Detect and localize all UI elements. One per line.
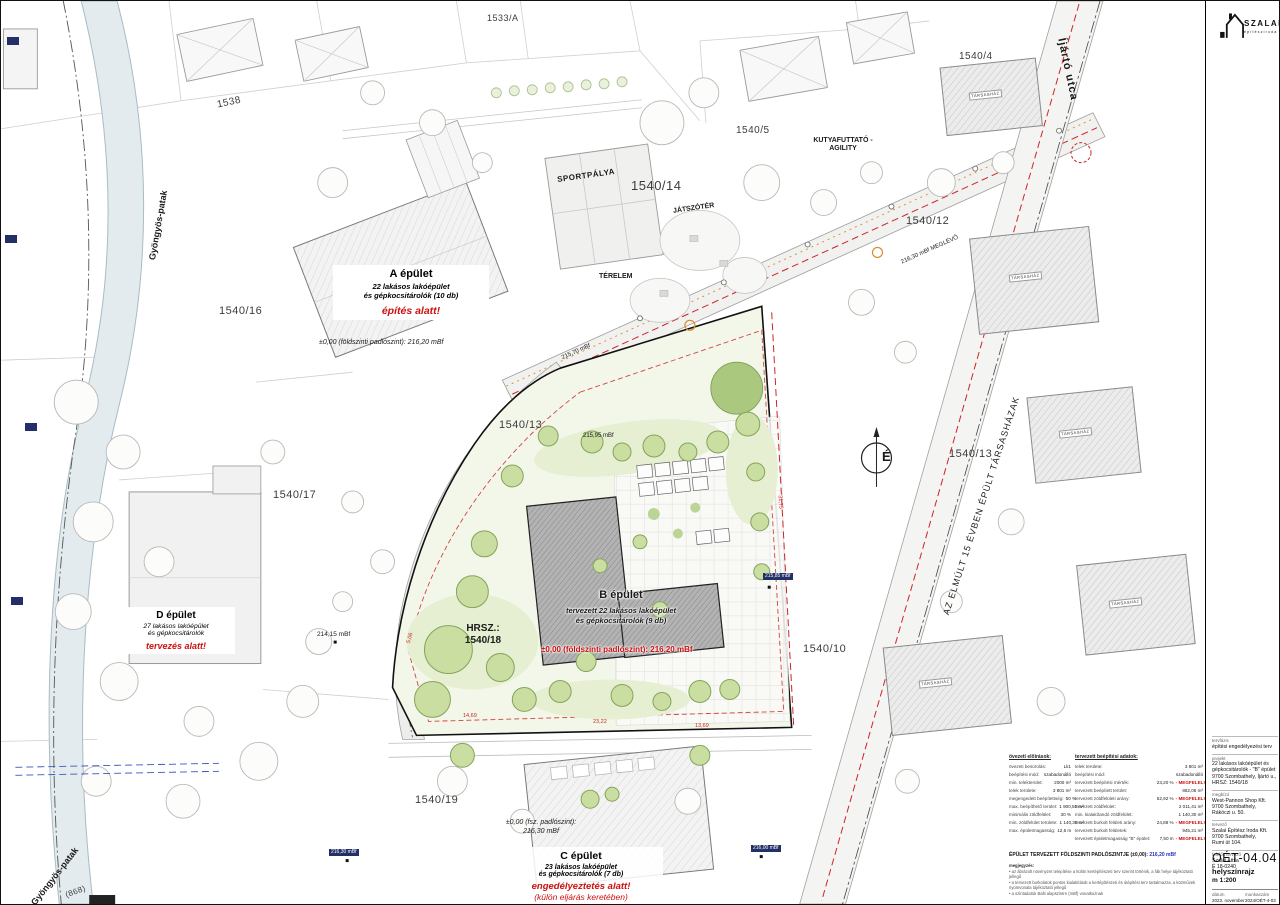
table-row: min. telekterület:2000 m² — [1009, 779, 1071, 787]
plot-label-1540-13-left: 1540/13 — [499, 419, 542, 432]
phase-section: tervfázis építési engedélyezési terv — [1212, 736, 1278, 750]
building-a-desc1: 22 lakásos lakóépület — [335, 282, 487, 291]
building-c-level2: 216,30 mBf — [485, 828, 597, 836]
plot-label-1540-16: 1540/16 — [219, 305, 262, 318]
logo-name: SZALAI — [1244, 19, 1280, 28]
level-tag-216-30: 216,30 mBf — [329, 849, 359, 856]
table-row: tervezett zöldfelület:2 011,41 m² — [1075, 803, 1205, 811]
table-row: tervezett burkolt felületi arány:24,88 %… — [1075, 819, 1205, 827]
level-tag-215-85: 215,85 mBf — [763, 573, 793, 580]
river-marker — [5, 235, 17, 243]
project-line: HRSZ: 1540/18 — [1212, 780, 1278, 786]
sport-field — [545, 144, 663, 269]
note-item: • az ábrázolt növényzet telepítése a kül… — [1009, 869, 1201, 880]
building-c-status: engedélyeztetés alatt! — [501, 881, 661, 892]
table-row: min. zöldfelület területe:1 140,30 m² — [1009, 819, 1071, 827]
table-row: minimális zöldfelület:30 % — [1009, 811, 1071, 819]
building-a-status: építés alatt! — [335, 305, 487, 317]
job-number-value: 2024/OÉT-4-03 — [1245, 898, 1278, 903]
date-value: 2023. november — [1212, 898, 1245, 903]
note-item: • a szintadatok Balti alapszintre (mBf) … — [1009, 891, 1201, 897]
project-line: gépkocsitárolók - "B" épület — [1212, 767, 1278, 773]
zoning-right-header: tervezett beépítési adatok: — [1075, 754, 1205, 760]
building-c-status-note: (külön eljárás keretében) — [501, 892, 661, 902]
building-a-title: A épület — [335, 268, 487, 280]
house-logo-icon — [1212, 7, 1246, 45]
level-label-214-15: 214,15 mBf — [317, 631, 350, 638]
building-d-desc2: és gépkocsitárolók — [119, 630, 233, 637]
building-b-desc1: tervezett 22 lakásos lakóépület — [506, 607, 736, 616]
level-tag-216-00: 216,00 mBf — [751, 845, 781, 852]
river-marker — [7, 37, 19, 45]
building-c-title: C épület — [501, 850, 661, 862]
date-job-row: dátum 2023. november munkaszám 2024/OÉT-… — [1212, 889, 1278, 903]
table-row: beépítési mód:szabadonálló — [1009, 771, 1071, 779]
dim-label-5: 31,75 — [776, 495, 783, 509]
job-number-caption: munkaszám — [1245, 891, 1278, 897]
table-row: telek területe:3 801 m² — [1009, 787, 1071, 795]
zoning-table-left: övezeti előírások: övezeti besorolás:Lk1… — [1009, 754, 1071, 835]
table-row: tervezett épületmagasság "B" épület:7,50… — [1075, 835, 1205, 843]
table-row: tervezett burkolt felületek:945,21 m² — [1075, 827, 1205, 835]
designer-section: tervező Szalai Építész Iroda Kft. 9700 S… — [1212, 820, 1278, 846]
notes-block: megjegyzés: • az ábrázolt növényzet tele… — [1009, 863, 1201, 897]
phase-caption: tervfázis — [1212, 736, 1278, 743]
site-plan-sheet: 1533/A 1538 1540/4 1540/5 1540/12 1540/1… — [0, 0, 1280, 905]
plot-label-1540-12: 1540/12 — [906, 215, 949, 228]
building-a-level: ±0,00 (földszinti padlószint): 216,20 mB… — [319, 339, 443, 347]
site-hrsz-line2: 1540/18 — [445, 635, 521, 647]
date-cell: dátum 2023. november — [1212, 889, 1245, 903]
plot-label-1540-5: 1540/5 — [736, 125, 770, 137]
floor-level-band-value: 216,20 mBf — [1149, 852, 1175, 858]
building-d-title: D épület — [119, 610, 233, 621]
date-caption: dátum — [1212, 891, 1245, 897]
plot-label-1540-14: 1540/14 — [631, 179, 682, 194]
client-section: megbízó West-Pannon Shop Kft. 9700 Szomb… — [1212, 790, 1278, 816]
table-row: tervezett zöldfelületi arány:52,92 %- ME… — [1075, 795, 1205, 803]
sheet-name: helyszínrajz — [1212, 867, 1255, 876]
dim-label-2: 14,69 — [463, 713, 477, 719]
building-b-level: ±0,00 (földszinti padlószint): 216,20 mB… — [541, 645, 693, 654]
table-row: min. kialakítandó zöldfelület:1 140,30 m… — [1075, 811, 1205, 819]
table-row: megengedett beépítettség:50 % — [1009, 795, 1071, 803]
area-label-dog-run: KUTYAFUTTATÓ - AGILITY — [811, 137, 875, 153]
building-d-status: tervezés alatt! — [119, 641, 233, 651]
title-block: SZALAI építésziroda tervfázis építési en… — [1205, 1, 1280, 905]
table-row: max. épületmagasság:12,5 m — [1009, 827, 1071, 835]
building-d-label: D épület 27 lakásos lakóépület és gépkoc… — [117, 607, 235, 654]
designer-line: Rumi út 104. — [1212, 840, 1278, 846]
project-line: 9700 Szombathely, Íjártó u., — [1212, 774, 1278, 780]
plot-label-1540-19: 1540/19 — [415, 794, 458, 807]
table-row: övezeti besorolás:Lk1 — [1009, 763, 1071, 771]
floor-level-band-label: ÉPÜLET TERVEZETT FÖLDSZINTI PADLÓSZINTJE… — [1009, 852, 1148, 858]
building-c-desc2: és gépkocsitárolók (7 db) — [501, 871, 661, 878]
table-row: beépítési mód:szabadonálló — [1075, 771, 1205, 779]
client-line: Rákóczi u. 50. — [1212, 810, 1278, 816]
plot-label-1540-17: 1540/17 — [273, 489, 316, 502]
designer-caption: tervező — [1212, 820, 1278, 827]
plot-label-1540-4: 1540/4 — [959, 51, 993, 63]
building-a-label: A épület 22 lakásos lakóépület és gépkoc… — [333, 265, 489, 320]
logo-subtitle: építésziroda — [1244, 30, 1277, 34]
building-b-desc2: és gépkocsitárolók (9 db) — [506, 617, 736, 626]
area-label-terelem: TÉRELEM — [599, 273, 632, 281]
sheet-code: OÉT-04.04 — [1212, 851, 1277, 865]
building-b-title: B épület — [531, 589, 711, 602]
river-marker — [11, 597, 23, 605]
tree-row-path — [491, 77, 627, 98]
plot-label-1540-13-right: 1540/13 — [949, 448, 992, 461]
building-a-desc2: és gépkocsitárolók (10 db) — [335, 291, 487, 300]
project-section: projekt 22 lakásos lakóépület és gépkocs… — [1212, 754, 1278, 786]
building-c-desc1: 23 lakásos lakóépület — [501, 864, 661, 871]
plot-label-1533a: 1533/A — [487, 13, 519, 23]
table-row: tervezett beépített terület:882,06 m² — [1075, 787, 1205, 795]
company-logo: SZALAI építésziroda — [1212, 7, 1278, 47]
sheet-scale: m 1:200 — [1212, 877, 1236, 884]
project-caption: projekt — [1212, 754, 1278, 761]
building-c-label: C épület 23 lakásos lakóépület és gépkoc… — [499, 847, 663, 905]
phase-value: építési engedélyezési terv — [1212, 744, 1278, 750]
table-row: tervezett beépítési mérték:23,20 %- MEGF… — [1075, 779, 1205, 787]
floor-level-band: ÉPÜLET TERVEZETT FÖLDSZINTI PADLÓSZINTJE… — [1009, 852, 1205, 858]
note-item: • a tervezett burkolatok pontos kialakít… — [1009, 880, 1201, 891]
job-number-cell: munkaszám 2024/OÉT-4-03 — [1245, 889, 1278, 903]
plot-label-1540-10: 1540/10 — [803, 643, 846, 656]
dim-label-4: 13,69 — [695, 723, 709, 729]
building-c-level1: ±0,00 (fsz. padlószint): — [485, 819, 597, 827]
existing-houses — [3, 12, 914, 101]
north-label: É — [882, 450, 891, 465]
dim-label-3: 23,22 — [593, 719, 607, 725]
table-row: max. beépíthető terület:1 900,50 m² — [1009, 803, 1071, 811]
zoning-left-header: övezeti előírások: — [1009, 754, 1071, 760]
river-marker — [25, 423, 37, 431]
level-label-215-95: 215,95 mBf — [583, 433, 614, 440]
client-caption: megbízó — [1212, 790, 1278, 797]
table-row: telek területe:3 801 m² — [1075, 763, 1205, 771]
building-d-desc1: 27 lakásos lakóépület — [119, 623, 233, 630]
zoning-table-right: tervezett beépítési adatok: telek terüle… — [1075, 754, 1205, 843]
